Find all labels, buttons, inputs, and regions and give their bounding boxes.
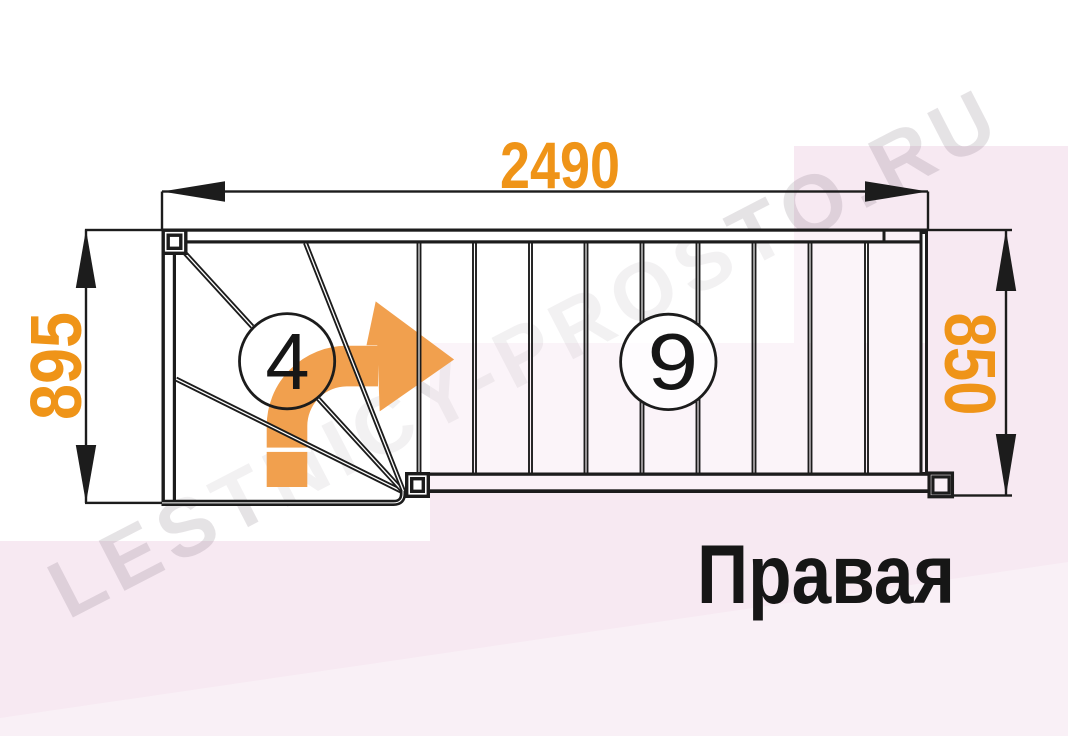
svg-text:4: 4 <box>265 317 309 406</box>
svg-text:2490: 2490 <box>500 128 620 203</box>
svg-text:9: 9 <box>647 317 698 406</box>
svg-text:850: 850 <box>929 313 1010 416</box>
svg-text:895: 895 <box>16 312 97 420</box>
svg-text:Правая: Правая <box>697 529 955 622</box>
